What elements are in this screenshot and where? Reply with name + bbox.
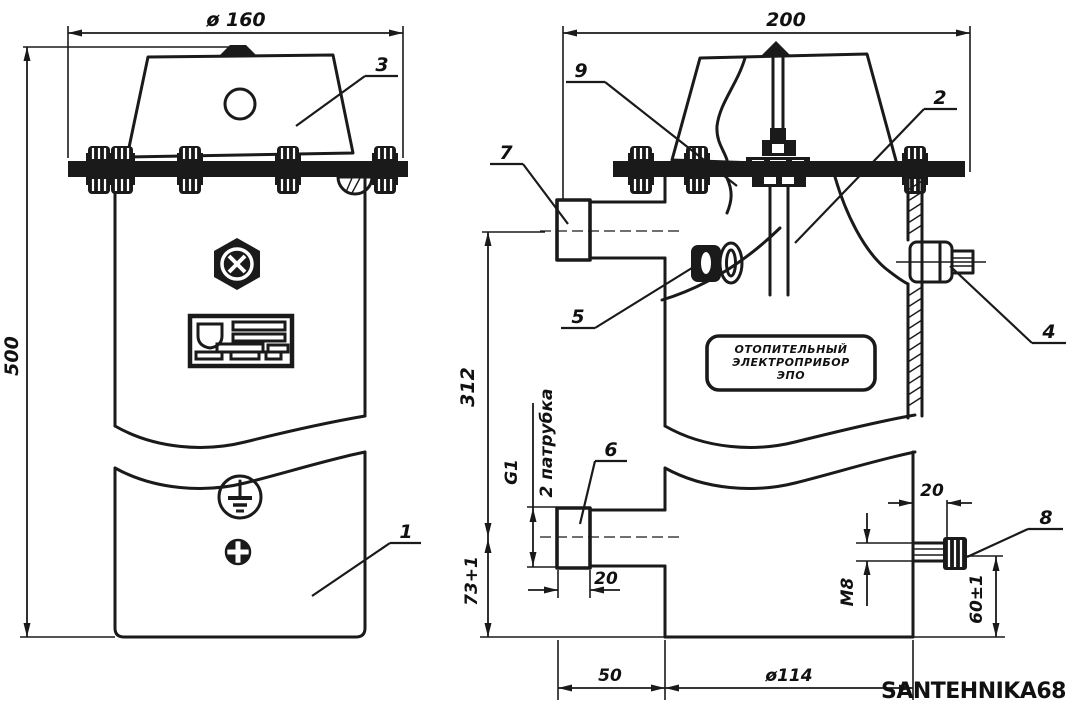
- part-number-top-pipe: 7: [499, 142, 513, 164]
- label-box-line3: ЭПО: [777, 369, 805, 382]
- front-view: ø 160 500 3 1: [1, 9, 421, 637]
- body-wall-section: [908, 177, 922, 418]
- drawing-canvas: ø 160 500 3 1: [0, 0, 1068, 706]
- part-label-outlet-fitting: 4: [950, 266, 1066, 343]
- part-number-gasket: 9: [574, 60, 587, 82]
- watermark: SANTEHNIKA68: [881, 679, 1066, 704]
- part-label-ground-stud: 8: [967, 507, 1063, 557]
- ground-stud: [913, 537, 967, 570]
- dim-pipe-length: 20: [528, 569, 620, 598]
- dim-label-stud-thread: M8: [838, 577, 858, 606]
- label-box: ОТОПИТЕЛЬНЫЙ ЭЛЕКТРОПРИБОР ЭПО: [707, 336, 875, 390]
- dim-label-stud-length: 20: [920, 481, 944, 501]
- part-number-bottom-pipe: 6: [604, 439, 617, 461]
- part-number-ground-stud: 8: [1039, 507, 1052, 529]
- outlet-fitting: [896, 242, 986, 282]
- flange-clamp: [338, 177, 372, 194]
- dim-label-pipe-to-body: 50: [598, 666, 622, 686]
- screw-head: [226, 540, 250, 564]
- liner-curve-right: [835, 177, 908, 284]
- dim-label-flange-diameter: ø 160: [205, 9, 265, 31]
- dim-pipe-heights: 312 73+1: [457, 232, 545, 637]
- part-number-heating-element: 2: [933, 87, 946, 109]
- dim-label-pipe-axis-height: 312: [457, 367, 479, 407]
- top-pipe-stub: [540, 200, 680, 260]
- dim-flange-diameter: ø 160: [68, 9, 403, 158]
- part-number-lid: 3: [375, 54, 388, 76]
- dim-label-side-width: 200: [766, 9, 806, 31]
- dim-label-pipe-thread: G1: [502, 459, 522, 485]
- body-break-wave-1: [115, 416, 365, 447]
- dim-pipe-thread: G1 2 патрубка: [502, 389, 557, 567]
- side-break-wave-2: [665, 452, 915, 488]
- part-label-lid: 3: [296, 54, 398, 126]
- side-break-wave-1: [665, 415, 915, 447]
- dim-label-pipe-note: 2 патрубка: [537, 389, 557, 498]
- bottom-pipe-stub: [540, 508, 680, 568]
- lid-section-wave-lower: [727, 178, 731, 213]
- part-number-plug: 5: [571, 306, 584, 328]
- side-flange-bar: [613, 161, 965, 177]
- nameplate: [190, 316, 292, 366]
- lid-outline: [127, 55, 353, 157]
- label-box-line2: ЭЛЕКТРОПРИБОР: [732, 356, 849, 369]
- dim-stud-length: 20: [888, 481, 972, 538]
- dim-label-body-diameter: ø114: [764, 666, 812, 686]
- hex-plug: [214, 238, 260, 290]
- side-view: ОТОПИТЕЛЬНЫЙ ЭЛЕКТРОПРИБОР ЭПО 200 312 7…: [457, 9, 1066, 700]
- lid-section-wave: [717, 58, 745, 160]
- ground-symbol: [219, 476, 261, 518]
- part-number-body: 1: [399, 521, 412, 543]
- flange-bar: [68, 161, 408, 177]
- dim-stud-thread: M8: [838, 513, 913, 606]
- label-box-line1: ОТОПИТЕЛЬНЫЙ: [735, 343, 848, 356]
- part-number-outlet-fitting: 4: [1041, 321, 1055, 343]
- dim-label-total-height: 500: [1, 336, 23, 376]
- dim-label-stud-height: 60±1: [967, 574, 987, 624]
- dim-label-pipe-length: 20: [594, 569, 618, 589]
- technical-drawing-epo-heater: ø 160 500 3 1: [0, 0, 1068, 706]
- dim-label-pipe-bottom-offset: 73+1: [462, 556, 482, 606]
- lid-hole: [225, 89, 255, 119]
